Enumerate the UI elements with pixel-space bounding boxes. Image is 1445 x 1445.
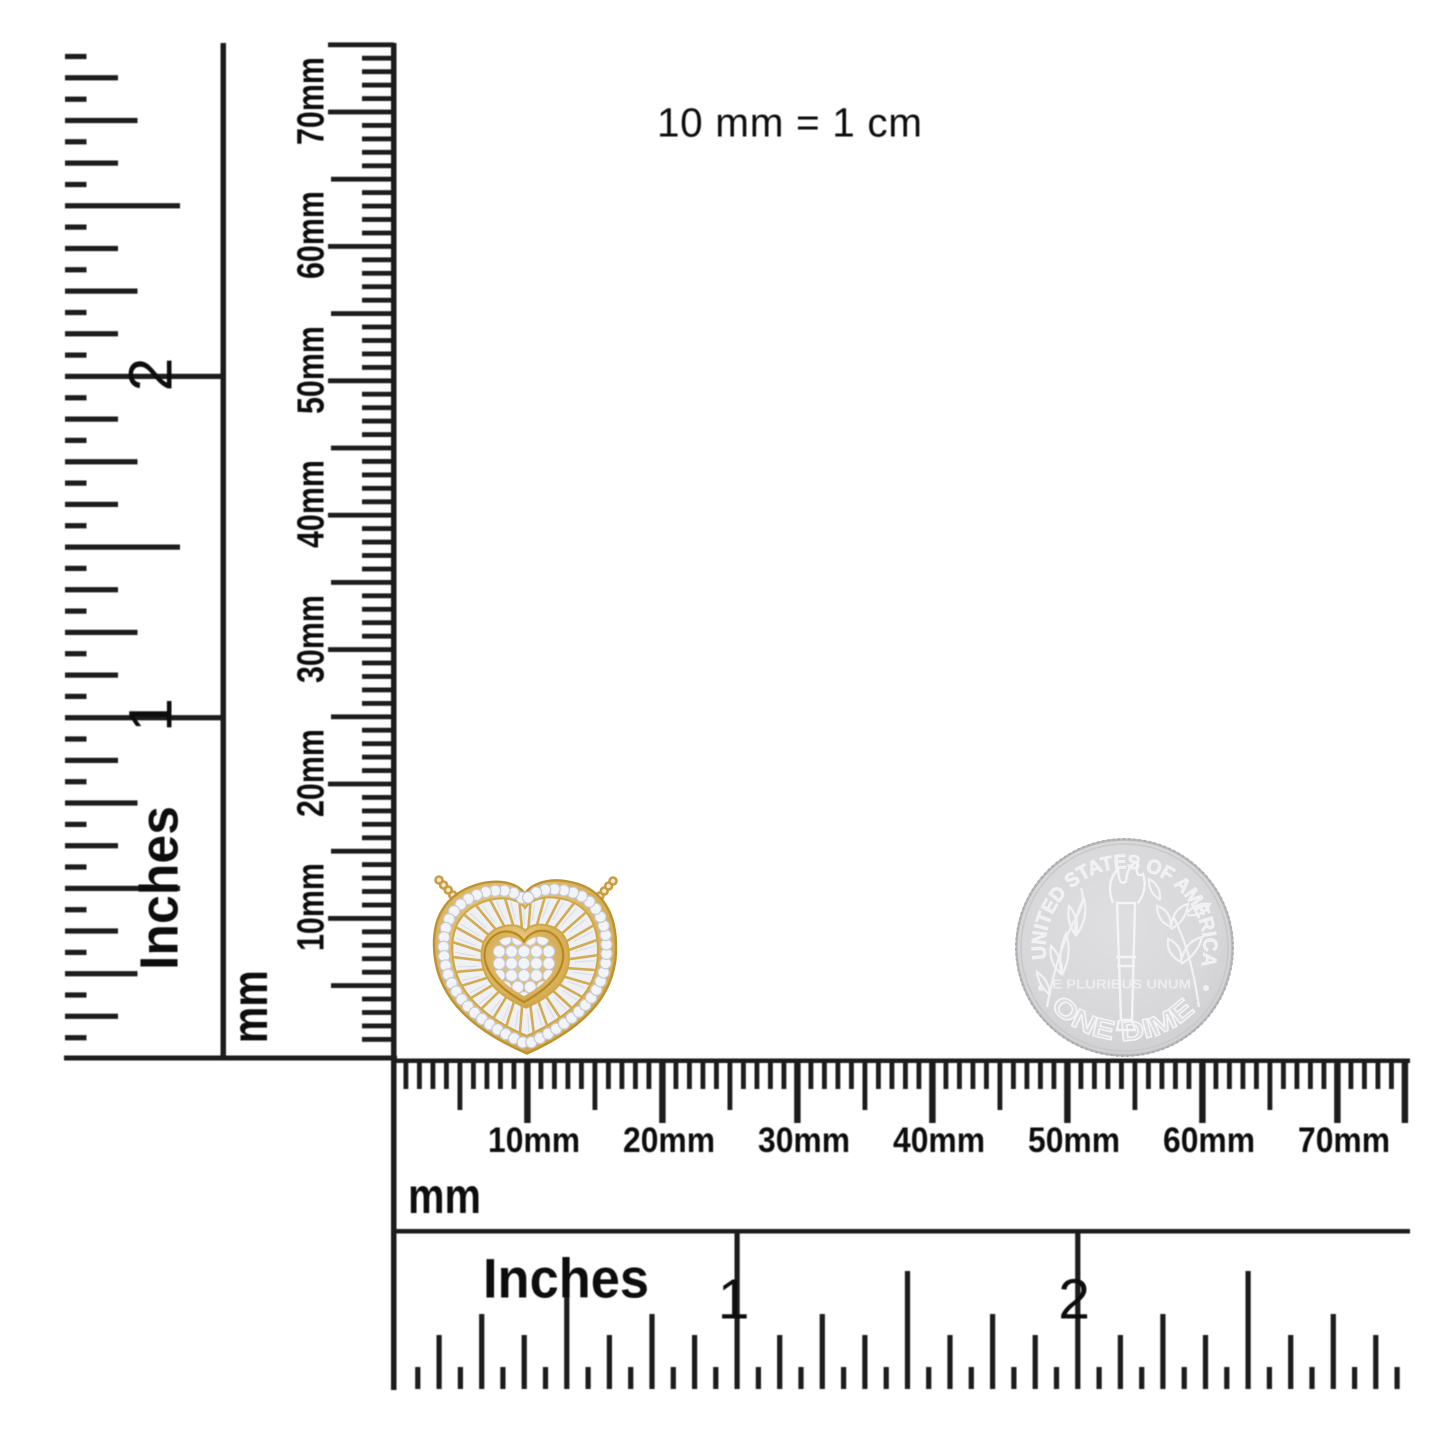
svg-text:1: 1 xyxy=(117,698,185,732)
svg-text:40mm: 40mm xyxy=(893,1121,985,1160)
svg-text:Inches: Inches xyxy=(130,806,190,970)
svg-text:mm: mm xyxy=(408,1168,481,1224)
svg-text:60mm: 60mm xyxy=(291,191,333,279)
svg-text:Inches: Inches xyxy=(483,1247,649,1310)
svg-text:20mm: 20mm xyxy=(291,729,333,817)
svg-text:70mm: 70mm xyxy=(1298,1121,1390,1160)
svg-text:60mm: 60mm xyxy=(1163,1121,1255,1160)
svg-text:30mm: 30mm xyxy=(291,595,333,683)
svg-text:10 mm = 1 cm: 10 mm = 1 cm xyxy=(657,100,922,146)
svg-text:20mm: 20mm xyxy=(623,1121,715,1160)
svg-text:2: 2 xyxy=(117,358,185,392)
svg-text:10mm: 10mm xyxy=(291,863,333,951)
svg-text:50mm: 50mm xyxy=(1028,1121,1120,1160)
svg-text:40mm: 40mm xyxy=(291,460,333,548)
svg-text:1: 1 xyxy=(718,1268,750,1332)
svg-text:30mm: 30mm xyxy=(758,1121,850,1160)
svg-text:mm: mm xyxy=(222,970,278,1043)
svg-text:2: 2 xyxy=(1058,1268,1090,1332)
svg-text:E PLURIBUS UNUM: E PLURIBUS UNUM xyxy=(1052,977,1191,992)
svg-text:70mm: 70mm xyxy=(291,57,333,145)
svg-text:50mm: 50mm xyxy=(291,326,333,414)
svg-text:10mm: 10mm xyxy=(488,1121,580,1160)
